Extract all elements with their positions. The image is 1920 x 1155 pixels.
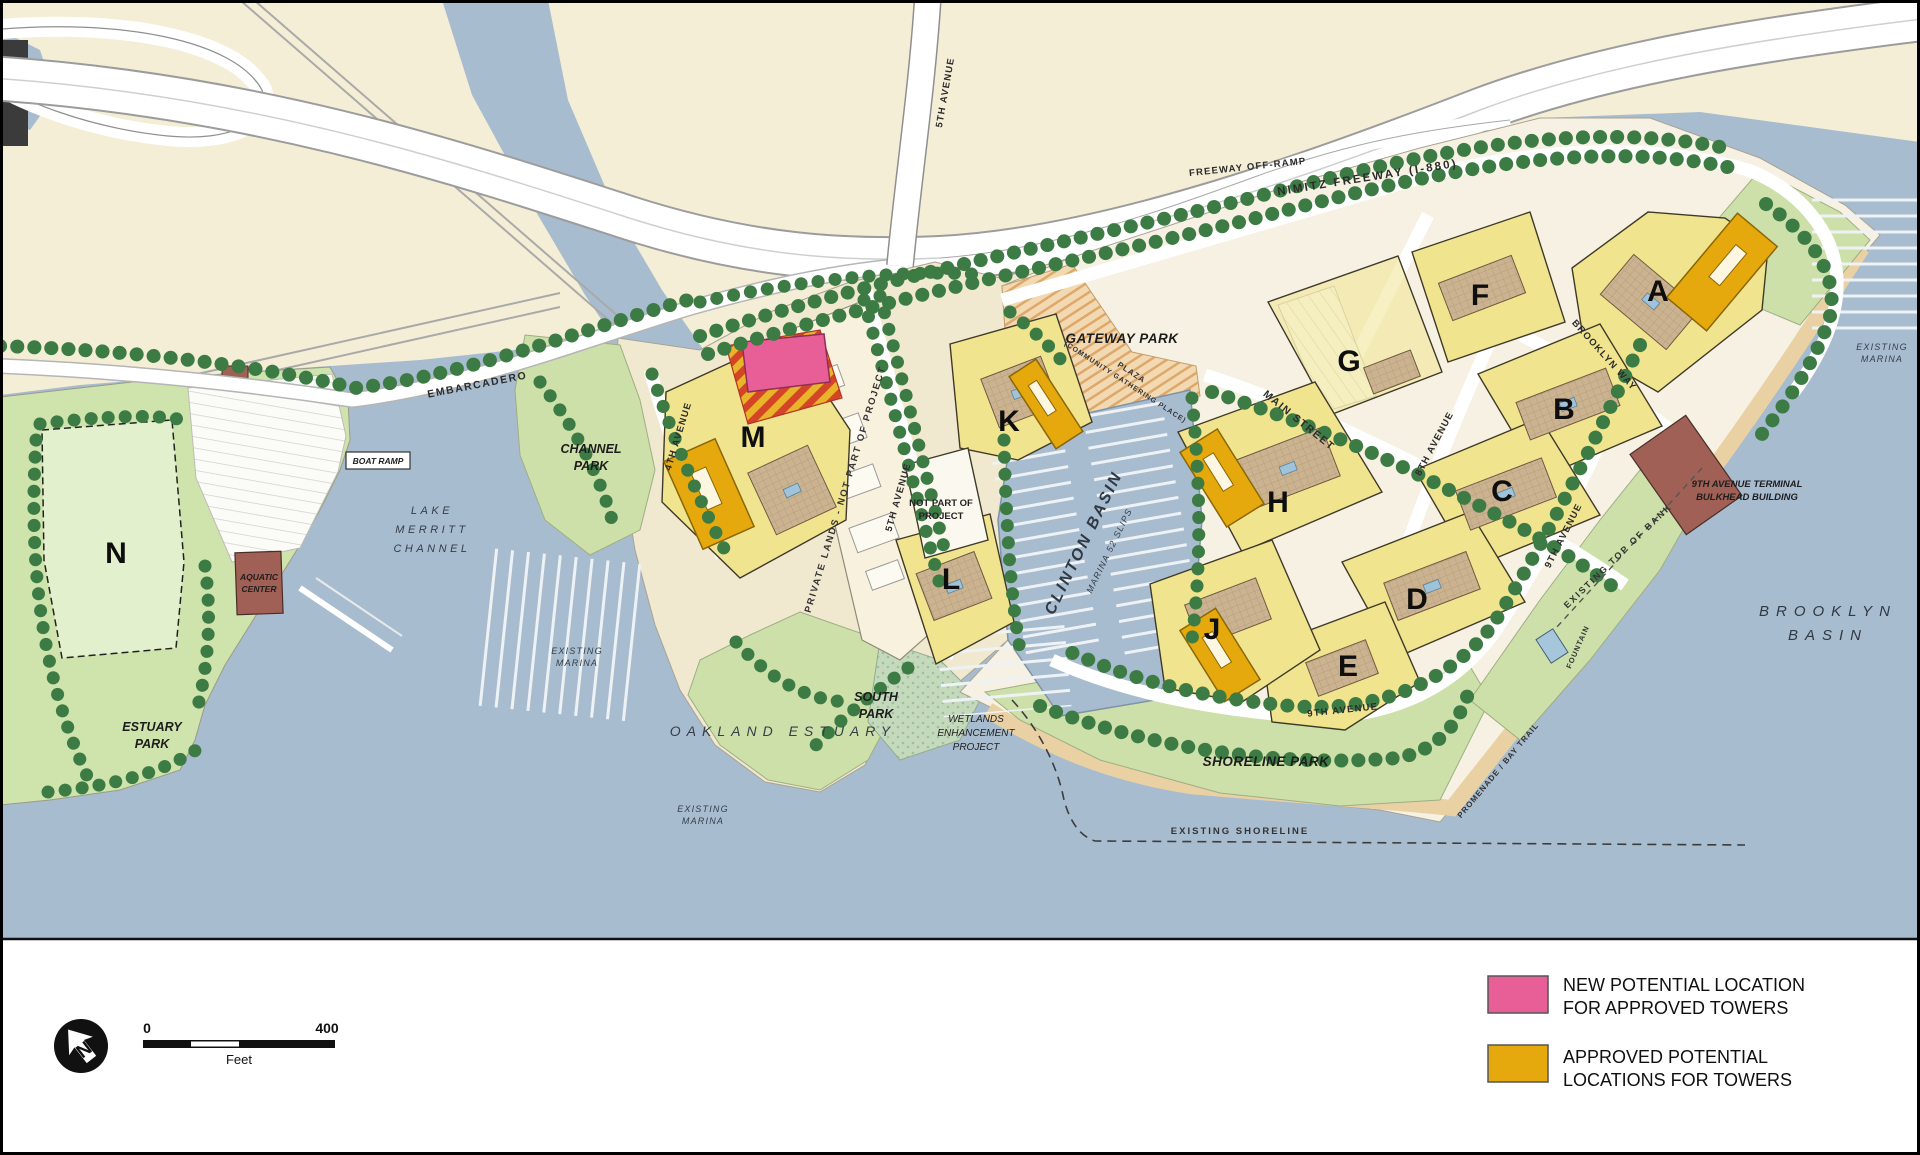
not-part-label-1: NOT PART OF xyxy=(909,498,973,509)
wetlands-label-3: PROJECT xyxy=(953,742,1001,753)
aquatic-center-label-1: AQUATIC xyxy=(239,572,279,582)
water-label-brooklyn: BROOKLYN xyxy=(1759,603,1897,620)
scale-zero: 0 xyxy=(143,1020,151,1036)
estuary-park-label-2: PARK xyxy=(135,737,170,751)
parcel-label-b: B xyxy=(1553,393,1575,426)
parcel-label-g: G xyxy=(1337,345,1360,378)
parcel-label-f: F xyxy=(1471,279,1489,312)
marina-label-2b: MARINA xyxy=(682,816,724,826)
legend-swatch-gold xyxy=(1488,1045,1548,1082)
parcel-label-c: C xyxy=(1491,475,1513,508)
legend-pink-line1: NEW POTENTIAL LOCATION xyxy=(1563,975,1805,995)
existing-shoreline-label: EXISTING SHORELINE xyxy=(1171,826,1309,837)
parcel-label-d: D xyxy=(1406,583,1428,616)
not-part-label-2: PROJECT xyxy=(919,511,964,522)
water-label-lake: LAKE xyxy=(411,505,453,517)
marina-label-1b: MARINA xyxy=(556,658,598,668)
marina-label-3a: EXISTING xyxy=(1856,342,1908,352)
parcel-label-a: A xyxy=(1647,275,1669,308)
legend-pink-line2: FOR APPROVED TOWERS xyxy=(1563,998,1788,1018)
channel-park-label-2: PARK xyxy=(574,459,609,473)
terminal-label-1: 9TH AVENUE TERMINAL xyxy=(1692,479,1803,490)
map-canvas: 5TH AVENUE FREEWAY OFF-RAMP NIMITZ FREEW… xyxy=(0,0,1920,1155)
water-label-oakland-estuary: OAKLAND ESTUARY xyxy=(670,723,896,739)
existing-marina-left-docks xyxy=(470,548,654,723)
marina-label-3b: MARINA xyxy=(1861,354,1903,364)
water-label-merritt: MERRITT xyxy=(395,524,468,536)
water-label-basin: BASIN xyxy=(1788,627,1868,644)
parcel-label-h: H xyxy=(1267,486,1289,519)
parcel-label-e: E xyxy=(1338,650,1358,683)
boat-ramp-label: BOAT RAMP xyxy=(353,456,404,466)
channel-park-label-1: CHANNEL xyxy=(560,442,621,456)
wetlands-label-2: ENHANCEMENT xyxy=(937,728,1015,739)
map-area: 5TH AVENUE FREEWAY OFF-RAMP NIMITZ FREEW… xyxy=(0,0,1920,940)
parcel-label-n: N xyxy=(105,537,127,570)
aquatic-center-label-2: CENTER xyxy=(242,584,278,594)
gateway-park-label: GATEWAY PARK xyxy=(1065,331,1179,346)
estuary-park-label-1: ESTUARY xyxy=(122,720,183,734)
south-park-label-1: SOUTH xyxy=(854,690,899,704)
parcel-label-j: J xyxy=(1204,613,1221,646)
north-arrow-icon: N xyxy=(54,1019,108,1073)
terminal-label-2: BULKHEAD BUILDING xyxy=(1696,492,1798,503)
south-park-label-2: PARK xyxy=(859,707,894,721)
scale-max: 400 xyxy=(315,1020,339,1036)
wetlands-label-1: WETLANDS xyxy=(948,714,1004,725)
parcel-label-l: L xyxy=(942,563,960,596)
legend-swatch-pink xyxy=(1488,976,1548,1013)
scale-unit: Feet xyxy=(226,1052,252,1067)
marina-label-2a: EXISTING xyxy=(677,804,729,814)
water-label-channel: CHANNEL xyxy=(393,543,470,555)
parcel-label-k: K xyxy=(998,405,1020,438)
marina-label-1a: EXISTING xyxy=(551,646,603,656)
shoreline-park-label: SHORELINE PARK xyxy=(1203,754,1331,769)
site-plan-figure: 5TH AVENUE FREEWAY OFF-RAMP NIMITZ FREEW… xyxy=(0,0,1920,1155)
legend-gold-line2: LOCATIONS FOR TOWERS xyxy=(1563,1070,1792,1090)
legend-strip: N 0 400 Feet NEW POTENTIAL LOCATION FOR … xyxy=(2,939,1918,1153)
parcel-label-m: M xyxy=(741,421,766,454)
aquatic-center-building xyxy=(235,551,283,615)
legend-gold-line1: APPROVED POTENTIAL xyxy=(1563,1047,1768,1067)
